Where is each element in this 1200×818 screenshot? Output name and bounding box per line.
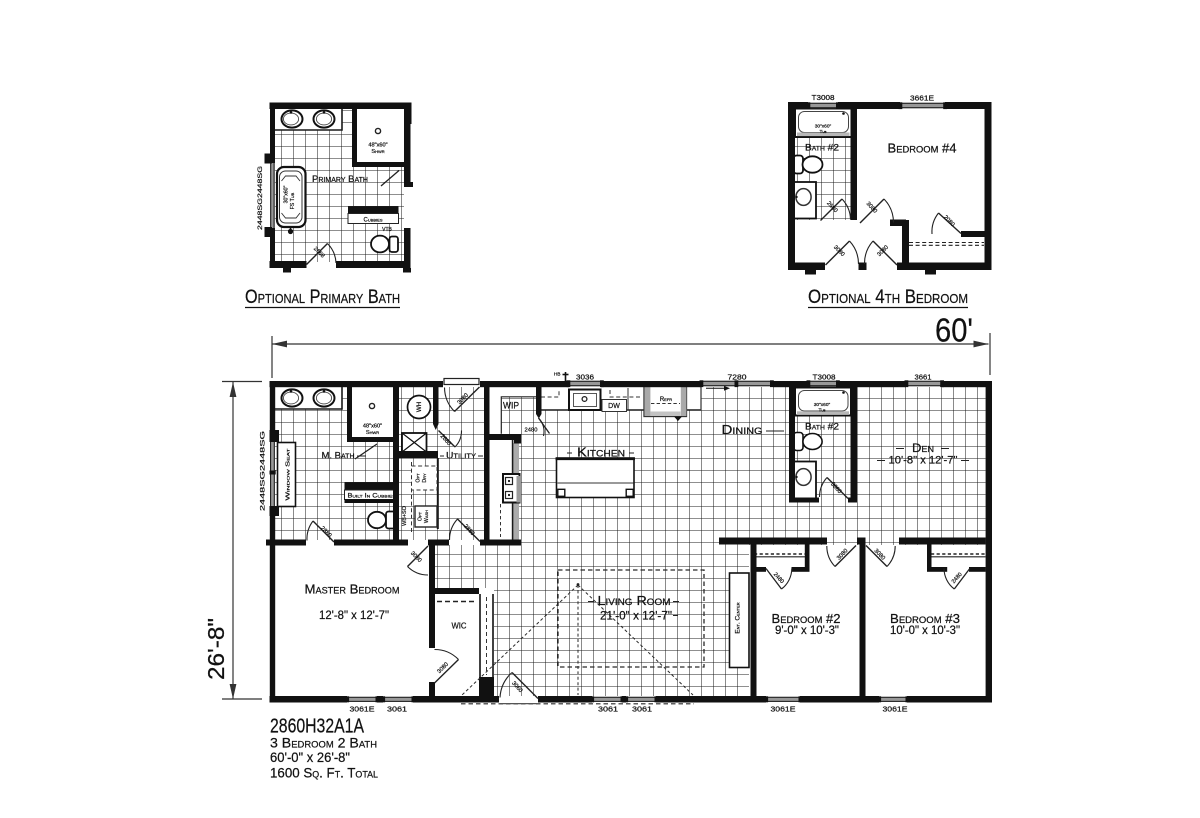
svg-text:Dining: Dining bbox=[722, 423, 763, 437]
svg-text:Utility: Utility bbox=[446, 451, 476, 462]
svg-text:Bath #2: Bath #2 bbox=[805, 422, 839, 432]
svg-text:3061: 3061 bbox=[387, 705, 407, 714]
svg-text:Shwr: Shwr bbox=[366, 430, 379, 436]
svg-text:3661: 3661 bbox=[915, 373, 932, 382]
svg-text:Tub: Tub bbox=[818, 408, 825, 414]
svg-text:30"x60": 30"x60" bbox=[814, 402, 831, 408]
svg-text:Primary Bath: Primary Bath bbox=[312, 174, 368, 185]
svg-text:Optional Primary Bath: Optional Primary Bath bbox=[245, 287, 400, 308]
svg-text:12'-8" x 12'-7": 12'-8" x 12'-7" bbox=[319, 608, 389, 622]
svg-text:3061: 3061 bbox=[598, 705, 618, 714]
svg-text:T3008: T3008 bbox=[812, 93, 835, 102]
svg-text:FS Tub: FS Tub bbox=[290, 192, 296, 209]
svg-text:3061: 3061 bbox=[632, 705, 652, 714]
svg-text:Refr: Refr bbox=[660, 397, 672, 403]
svg-text:Window Seat: Window Seat bbox=[286, 448, 292, 501]
svg-text:Opt: Opt bbox=[418, 511, 424, 521]
svg-text:2860H32A1A: 2860H32A1A bbox=[270, 716, 365, 738]
svg-text:Bedroom #2: Bedroom #2 bbox=[772, 612, 841, 626]
svg-text:9'-0" x 10'-3": 9'-0" x 10'-3" bbox=[775, 625, 839, 637]
svg-text:HB: HB bbox=[554, 372, 561, 378]
svg-text:WB+SO: WB+SO bbox=[402, 506, 408, 526]
svg-text:26'-8": 26'-8" bbox=[203, 618, 229, 680]
svg-text:3 Bedroom 2 Bath: 3 Bedroom 2 Bath bbox=[270, 736, 377, 751]
svg-text:Tub: Tub bbox=[819, 129, 826, 135]
svg-text:Dry: Dry bbox=[422, 473, 428, 483]
svg-text:VTB: VTB bbox=[382, 227, 392, 233]
svg-text:Bedroom #4: Bedroom #4 bbox=[888, 142, 957, 156]
svg-text:2448SG2448SG: 2448SG2448SG bbox=[260, 431, 267, 511]
svg-text:Optional 4th Bedroom: Optional 4th Bedroom bbox=[808, 287, 968, 308]
svg-text:Built In Cubbies: Built In Cubbies bbox=[348, 494, 396, 500]
svg-text:10'-8" x 12'-7": 10'-8" x 12'-7" bbox=[889, 455, 958, 467]
svg-text:Bedroom #3: Bedroom #3 bbox=[890, 612, 960, 626]
svg-text:Shwr: Shwr bbox=[371, 149, 384, 155]
svg-text:1600 Sq. Ft. Total: 1600 Sq. Ft. Total bbox=[270, 766, 378, 781]
svg-text:3061E: 3061E bbox=[883, 705, 908, 714]
svg-text:WIC: WIC bbox=[452, 621, 467, 631]
svg-text:Bath #2: Bath #2 bbox=[805, 143, 839, 153]
svg-text:Kitchen: Kitchen bbox=[577, 445, 625, 460]
svg-text:WH: WH bbox=[416, 402, 423, 412]
svg-text:10'-0" x 10'-3": 10'-0" x 10'-3" bbox=[890, 625, 960, 637]
svg-text:2480: 2480 bbox=[525, 428, 538, 434]
svg-text:60': 60' bbox=[935, 312, 973, 349]
svg-text:7280: 7280 bbox=[728, 373, 747, 382]
svg-text:Living Room: Living Room bbox=[598, 593, 671, 608]
svg-text:3036: 3036 bbox=[576, 373, 594, 382]
svg-text:30"x60": 30"x60" bbox=[284, 185, 290, 203]
svg-text:Den: Den bbox=[912, 443, 934, 455]
svg-text:Wash: Wash bbox=[424, 510, 430, 523]
svg-text:21'-0" x 12'-7": 21'-0" x 12'-7" bbox=[600, 609, 672, 623]
svg-text:Ent. Center: Ent. Center bbox=[735, 602, 742, 633]
svg-text:M. Bath: M. Bath bbox=[322, 451, 355, 462]
svg-text:3061E: 3061E bbox=[771, 705, 796, 714]
svg-text:3661E: 3661E bbox=[910, 94, 934, 103]
svg-text:Opt: Opt bbox=[416, 473, 422, 483]
svg-text:60'-0" x 26'-8": 60'-0" x 26'-8" bbox=[270, 750, 350, 765]
svg-text:48"x60": 48"x60" bbox=[368, 143, 387, 149]
svg-text:DW: DW bbox=[608, 403, 620, 410]
svg-text:Master Bedroom: Master Bedroom bbox=[305, 582, 400, 597]
svg-text:30"x60": 30"x60" bbox=[815, 124, 832, 130]
svg-text:48"x60": 48"x60" bbox=[363, 424, 382, 430]
svg-text:3061E: 3061E bbox=[350, 705, 375, 714]
svg-text:WIP: WIP bbox=[503, 401, 519, 411]
svg-text:Cubbies: Cubbies bbox=[363, 218, 382, 224]
svg-text:T3008: T3008 bbox=[813, 373, 836, 382]
svg-text:2448SG2448SG: 2448SG2448SG bbox=[257, 166, 264, 230]
